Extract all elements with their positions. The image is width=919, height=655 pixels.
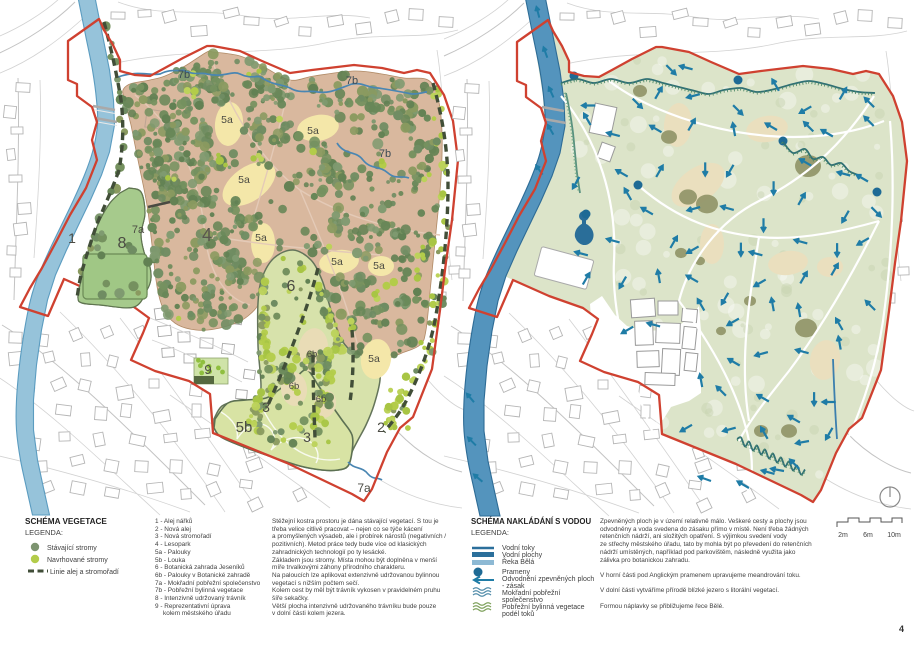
svg-text:6b: 6b <box>307 349 318 360</box>
svg-text:zálivka pro botanickou zahradu: zálivka pro botanickou zahradu. <box>600 557 690 564</box>
svg-text:Navrhované stromy: Navrhované stromy <box>47 557 108 564</box>
svg-text:Řeka Bělá: Řeka Bělá <box>502 557 534 566</box>
svg-text:5b - Louka: 5b - Louka <box>155 557 186 564</box>
svg-text:odvodněny a voda svedena do zá: odvodněny a voda svedena do zásaku přímo… <box>600 526 809 533</box>
svg-text:Formou náplavky se přibližujem: Formou náplavky se přibližujeme řece Běl… <box>600 603 724 610</box>
svg-text:9: 9 <box>204 362 211 377</box>
svg-text:6 - Botanická zahrada Jeseníků: 6 - Botanická zahrada Jeseníků <box>155 563 245 571</box>
svg-text:V dolní části vytváříme přírod: V dolní části vytváříme přírodě blízké j… <box>600 587 779 594</box>
svg-text:8: 8 <box>118 235 127 252</box>
svg-text:3: 3 <box>262 399 270 415</box>
svg-text:7b: 7b <box>346 75 358 87</box>
svg-text:7a: 7a <box>132 224 145 236</box>
svg-text:6m: 6m <box>863 532 873 539</box>
svg-text:4: 4 <box>899 624 904 634</box>
svg-text:5a: 5a <box>255 232 267 244</box>
svg-text:SCHÉMA VEGETACE: SCHÉMA VEGETACE <box>25 516 107 526</box>
svg-text:Kolem cest by měl být trávník: Kolem cest by měl být trávník vykosen v … <box>272 587 441 594</box>
svg-text:vegetací s nižším počtem sečí.: vegetací s nižším počtem sečí. <box>272 580 360 587</box>
svg-text:5a: 5a <box>331 256 343 268</box>
svg-text:10m: 10m <box>887 532 901 539</box>
svg-text:1 - Alej nářků: 1 - Alej nářků <box>155 517 193 525</box>
svg-text:5a: 5a <box>238 174 250 186</box>
svg-text:a promyšlených výsadeb, ale i: a promyšlených výsadeb, ale i probírek n… <box>272 532 446 540</box>
svg-text:třeba velice citlivě pracovat: třeba velice citlivě pracovat – nejen co… <box>272 526 423 533</box>
svg-text:Větší plocha intenzivně udržov: Větší plocha intenzivně udržovaného tráv… <box>272 603 437 610</box>
svg-text:1: 1 <box>68 230 76 246</box>
svg-text:- zásak: - zásak <box>502 583 525 590</box>
svg-text:8 - Intenzivně udržovaný trávn: 8 - Intenzivně udržovaný trávník <box>155 595 246 602</box>
svg-text:šíře sekačky.: šíře sekačky. <box>272 595 309 602</box>
svg-text:Vodní toky: Vodní toky <box>502 545 535 552</box>
svg-text:5a: 5a <box>368 353 380 365</box>
svg-text:zahradnických technologií po t: zahradnických technologií po ty lesácké. <box>272 549 387 556</box>
svg-text:4 - Lesopark: 4 - Lesopark <box>155 541 191 548</box>
svg-text:3: 3 <box>303 429 311 445</box>
svg-text:V horní části pod Anglickým pr: V horní části pod Anglickým pramenem upr… <box>600 572 801 579</box>
svg-text:Linie alej a stromořadí: Linie alej a stromořadí <box>50 569 119 576</box>
svg-text:7a: 7a <box>357 481 371 495</box>
svg-text:Stěžejní kostra prostoru je dá: Stěžejní kostra prostoru je dána stávají… <box>272 518 439 525</box>
svg-text:LEGENDA:: LEGENDA: <box>25 528 63 537</box>
svg-text:míře trvalkovými záhony přírod: míře trvalkovými záhony přírodního chara… <box>272 564 406 571</box>
svg-text:7b: 7b <box>178 69 190 81</box>
svg-text:SCHÉMA NAKLÁDÁNÍ S VODOU: SCHÉMA NAKLÁDÁNÍ S VODOU <box>471 517 592 526</box>
svg-text:Prameny: Prameny <box>502 569 531 576</box>
svg-text:Pobřežní bylinná vegetace: Pobřežní bylinná vegetace <box>502 604 585 611</box>
svg-text:společenstvo: společenstvo <box>502 597 543 604</box>
svg-text:Zpevněných ploch je v území re: Zpevněných ploch je v území relativně má… <box>600 518 807 525</box>
svg-text:5a - Palouky: 5a - Palouky <box>155 549 191 556</box>
svg-text:Vodní plochy: Vodní plochy <box>502 552 543 559</box>
svg-text:Stávající stromy: Stávající stromy <box>47 545 97 552</box>
svg-text:2 - Nová alej: 2 - Nová alej <box>155 526 191 533</box>
svg-text:pozitivních). Metod práce tedy: pozitivních). Metod práce tedy bude více… <box>272 541 427 548</box>
svg-text:retenčních nádrží, ani složitý: retenčních nádrží, ani složitých opatřen… <box>600 533 788 540</box>
svg-text:kolem městského úřadu: kolem městského úřadu <box>163 610 231 617</box>
svg-text:2m: 2m <box>838 532 848 539</box>
svg-text:9 - Reprezentativní úprava: 9 - Reprezentativní úprava <box>155 603 231 610</box>
svg-text:5a: 5a <box>221 114 233 126</box>
svg-text:6: 6 <box>287 278 296 295</box>
svg-text:2: 2 <box>377 419 385 435</box>
svg-text:podél toků: podél toků <box>502 610 534 618</box>
svg-text:v dolní části kolem jezera.: v dolní části kolem jezera. <box>272 610 346 617</box>
svg-text:7b - Pobřežní bylinná vegetace: 7b - Pobřežní bylinná vegetace <box>155 587 244 594</box>
svg-text:Na paloucích lze aplikovat ext: Na paloucích lze aplikovat extenzivně ud… <box>272 572 440 579</box>
svg-text:5b: 5b <box>236 419 253 436</box>
svg-text:7b: 7b <box>379 148 391 160</box>
svg-text:6b: 6b <box>289 381 300 392</box>
svg-text:LEGENDA:: LEGENDA: <box>471 528 509 537</box>
svg-text:Základem jsou stromy. Místa mo: Základem jsou stromy. Místa mohou být do… <box>272 557 437 564</box>
svg-text:3 - Nová stromořadí: 3 - Nová stromořadí <box>155 533 212 540</box>
svg-text:6b: 6b <box>316 394 327 405</box>
svg-text:5a: 5a <box>307 125 319 137</box>
svg-text:Mokřadní pobřežní: Mokřadní pobřežní <box>502 590 560 597</box>
svg-text:5a: 5a <box>373 260 385 272</box>
svg-text:ze střechy městského úřadu, ta: ze střechy městského úřadu, tato by mohl… <box>600 541 812 548</box>
svg-text:Odvodnění zpevněných ploch: Odvodnění zpevněných ploch <box>502 576 594 583</box>
svg-text:nádrží umístěných, například p: nádrží umístěných, například pod parkovi… <box>600 549 796 556</box>
svg-text:7a - Mokřadní pobřežní společe: 7a - Mokřadní pobřežní společenstvo <box>155 580 261 587</box>
svg-text:4: 4 <box>202 225 212 245</box>
svg-text:6b - Palouky v Botanické zahra: 6b - Palouky v Botanické zahradě <box>155 572 251 579</box>
